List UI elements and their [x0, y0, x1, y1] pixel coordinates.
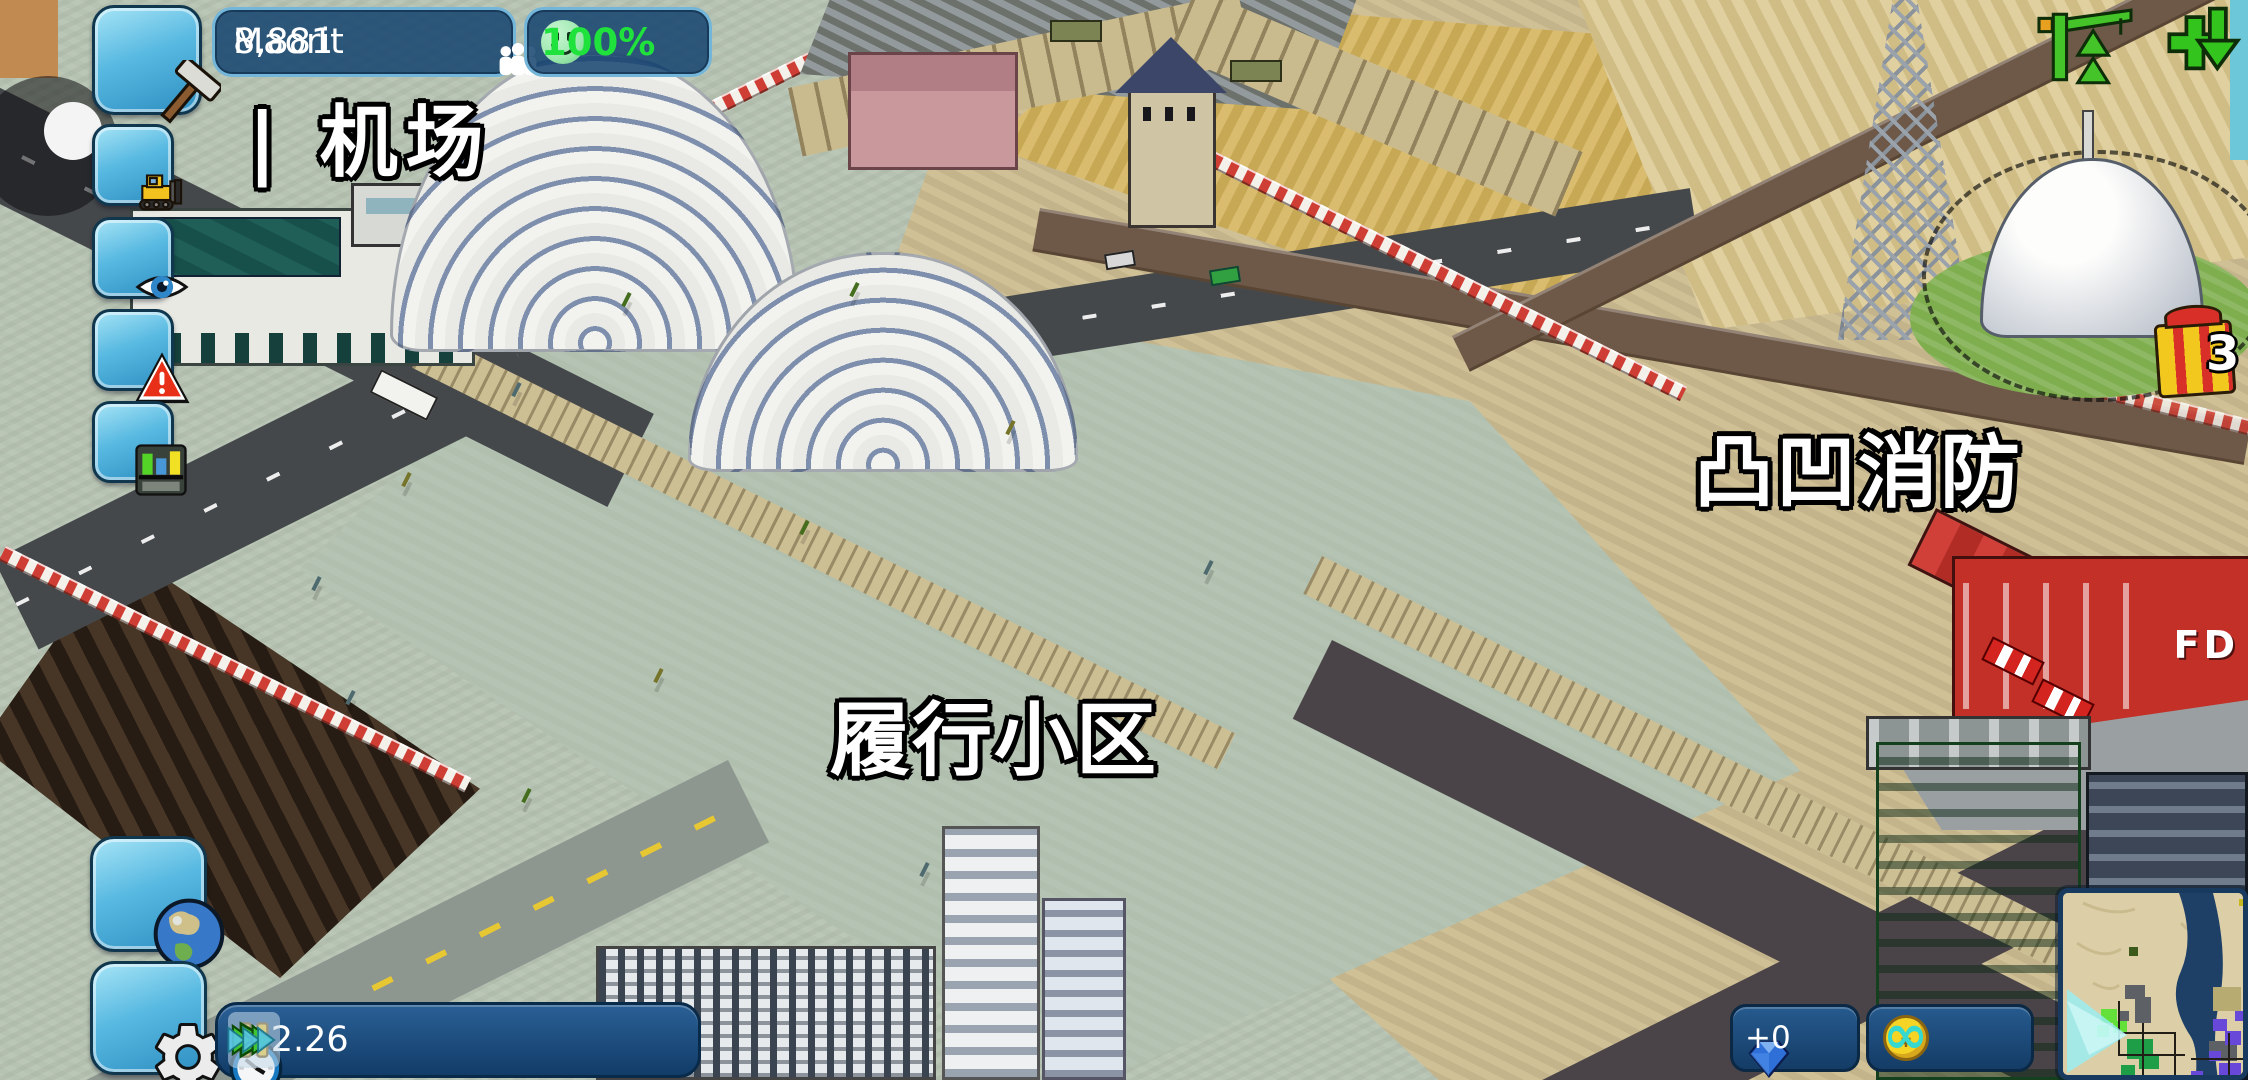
military-truck	[1230, 60, 1282, 82]
minimap[interactable]	[2058, 888, 2248, 1080]
max-speed-button[interactable]	[228, 1012, 280, 1068]
happiness-pill[interactable]: 100%	[524, 7, 712, 77]
diamonds-pill[interactable]: +0	[1730, 1004, 1860, 1072]
military-truck	[1050, 20, 1102, 42]
region-label-fire: 凸凹消防	[1694, 408, 2022, 524]
bulldoze-button[interactable]	[92, 124, 174, 206]
white-tower	[942, 826, 1040, 1080]
watchtower	[1128, 88, 1216, 228]
city-info-pill[interactable]: Maorit 8,881	[212, 7, 516, 77]
region-label-residential: 履行小区	[830, 676, 1158, 792]
white-tower	[1042, 898, 1126, 1080]
alerts-button[interactable]	[92, 309, 174, 391]
happiness-value: 100%	[541, 21, 655, 64]
gift-count-badge: 3	[2206, 326, 2239, 382]
region-button[interactable]	[90, 836, 207, 952]
construction-notification-button[interactable]	[2030, 2, 2142, 94]
corner-building	[0, 0, 58, 78]
settings-button[interactable]	[90, 961, 207, 1075]
pink-building	[848, 52, 1018, 170]
money-value: ∞	[1883, 1008, 1928, 1062]
build-button[interactable]	[92, 5, 202, 115]
minimap-content	[2063, 893, 2248, 1080]
money-pill[interactable]: ∞	[1866, 1004, 2034, 1072]
game-viewport[interactable]: FD | 机场 凸凹消防 履行小区	[0, 0, 2248, 1080]
stats-button[interactable]	[92, 401, 174, 483]
fd-sign: FD	[2173, 623, 2239, 667]
time-control-bar[interactable]: 7.2.26	[215, 1002, 701, 1078]
max-speed-icon	[227, 1020, 281, 1060]
new-content-notification-button[interactable]	[2148, 4, 2244, 90]
view-overlays-button[interactable]	[92, 217, 174, 299]
diamond-delta-value: +0	[1745, 1020, 1791, 1056]
population-value: 8,881	[233, 22, 333, 62]
region-label-airport: | 机场	[248, 80, 492, 192]
